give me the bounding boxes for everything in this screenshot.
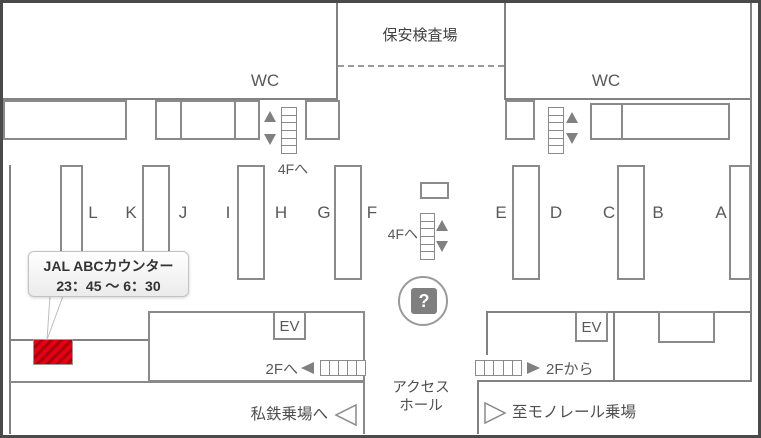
stairs-icon [320,360,366,376]
escalator-icon [548,107,564,154]
arrow-up-icon [264,111,276,122]
counter-label-L: L [83,203,103,223]
monorail-label: 至モノレール乗場 [512,404,652,422]
counter-label-J: J [173,203,193,223]
kiosk-box [590,103,623,140]
arrow-left-outline-icon [332,403,358,427]
wall [613,311,615,382]
counter-label-A: A [711,203,731,223]
counter-label-D: D [546,203,566,223]
kiosk-box [305,100,340,140]
info-button[interactable]: ? [398,276,448,326]
stairs-icon [475,360,522,376]
counter-label-G: G [314,203,334,223]
escalator-icon [281,107,297,154]
counter-label-H: H [271,203,291,223]
tooltip-pointer [38,296,64,342]
wc-right-label: WC [576,71,636,91]
access-hall-label-line1: アクセス [386,380,456,397]
wall [504,98,752,100]
arrow-up-icon [566,112,578,123]
elevator-left: EV [273,311,306,340]
security-area-label: 保安検査場 [355,27,485,44]
wall [486,311,488,355]
arrow-right-outline-icon [483,401,509,425]
kiosk-box [621,103,730,140]
arrow-left-icon [301,362,314,374]
counter-label-E: E [491,203,511,223]
counter-label-C: C [599,203,619,223]
checkin-counter-island [617,165,645,280]
elevator-right: EV [575,311,608,342]
jal-abc-tooltip: JAL ABCカウンター 23：45 ～ 6：30 [28,251,189,297]
jal-abc-tooltip-title: JAL ABCカウンター [29,256,188,276]
to-2f-label: 2Fへ [246,361,298,378]
kiosk-box [505,100,535,140]
jal-abc-counter-highlight [33,339,73,365]
kiosk-box [3,100,127,140]
wall [477,380,479,434]
counter-label-K: K [121,203,141,223]
kiosk-box [155,100,182,140]
to-4f-left-label: 4Fへ [269,161,317,177]
kiosk-box [420,182,449,199]
to-4f-center-label: 4Fへ [372,226,418,242]
wall [11,339,148,341]
access-hall-label-line2: ホール [386,398,456,415]
arrow-right-icon [527,362,540,374]
wall [477,380,752,382]
arrow-down-icon [566,133,578,144]
kiosk-box [180,100,236,140]
jal-abc-tooltip-hours: 23：45 ～ 6：30 [29,276,188,296]
counter-label-B: B [648,203,668,223]
arrow-down-icon [264,134,276,145]
counter-label-I: I [218,203,238,223]
counter-label-F: F [362,203,382,223]
from-2f-label: 2Fから [546,361,606,378]
wall [504,3,506,100]
private-railway-label: 私鉄乗場へ [222,406,328,424]
room-box [658,311,715,343]
arrow-down-icon [436,241,448,252]
escalator-icon [420,213,435,260]
arrow-up-icon [436,220,448,231]
checkin-counter-island [237,165,265,280]
wc-left-label: WC [235,71,295,91]
question-mark-icon: ? [411,288,437,314]
kiosk-box [234,100,260,140]
checkin-counter-island [512,165,540,280]
security-boundary-dashed-line [338,65,504,67]
checkin-counter-island [334,165,362,280]
checkin-counter-island [729,165,751,280]
terminal-floor-map: 保安検査場 WC WC 4Fへ 4Fへ ? L K J I H G F E D … [0,0,761,438]
wall [336,3,338,100]
